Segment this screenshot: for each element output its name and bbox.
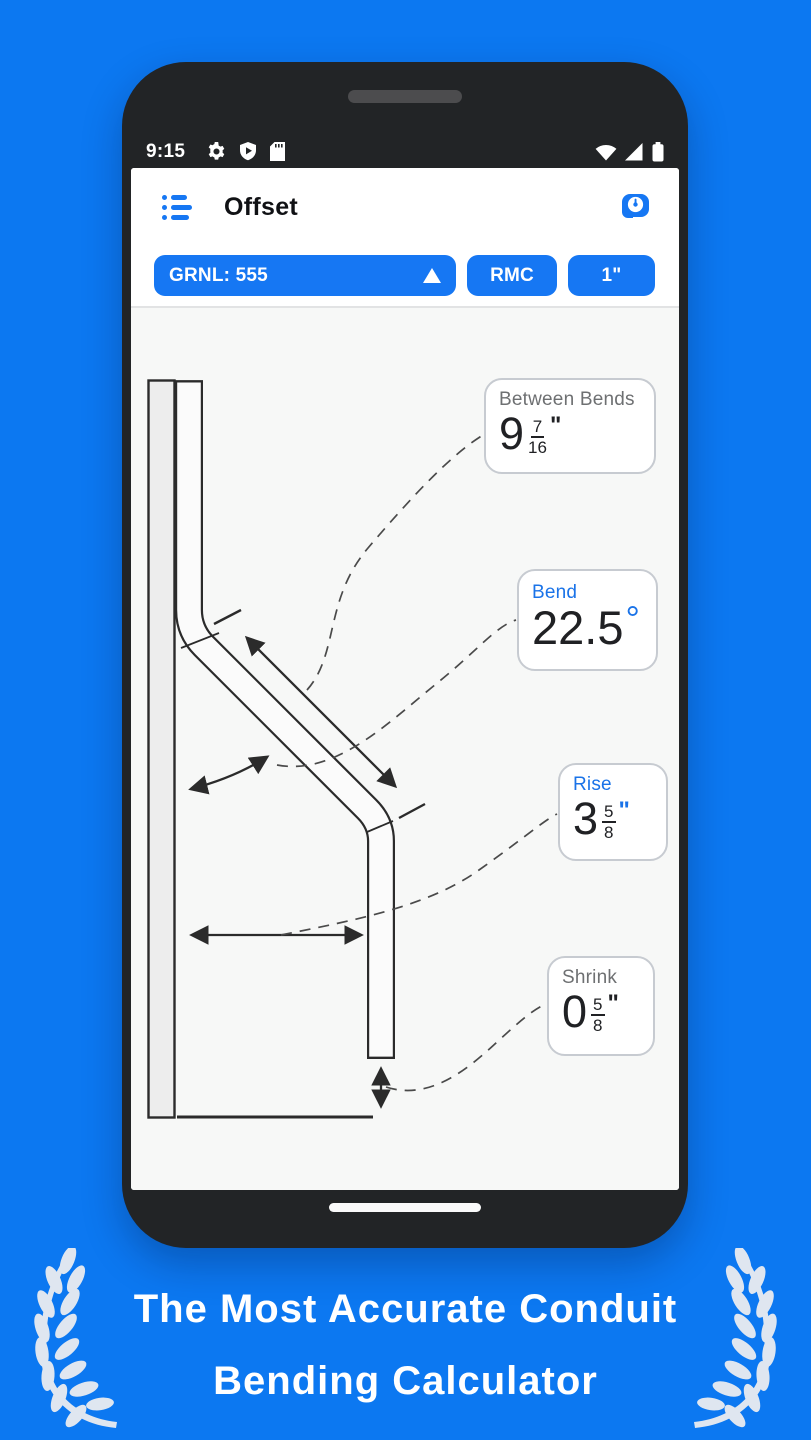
size-label: 1" bbox=[602, 265, 622, 287]
between-bends-value: 9 7 16 " bbox=[499, 413, 644, 457]
bend-tick-1 bbox=[214, 610, 241, 624]
caption-line-1: The Most Accurate Conduit bbox=[0, 1287, 811, 1332]
triangle-up-icon bbox=[423, 268, 441, 283]
rise-value: 3 5 8 " bbox=[573, 798, 656, 842]
leader-shrink bbox=[386, 1004, 546, 1090]
wall bbox=[149, 381, 175, 1118]
app-screen: Offset GRNL: 555 RMC bbox=[131, 168, 679, 1190]
battery-icon bbox=[652, 142, 664, 162]
shrink-callout: Shrink 0 5 8 " bbox=[547, 956, 655, 1056]
gear-icon bbox=[207, 142, 226, 161]
between-bends-callout: Between Bends 9 7 16 " bbox=[484, 378, 656, 474]
material-label: RMC bbox=[490, 265, 534, 287]
laurel-branch-left bbox=[12, 1248, 124, 1434]
clock-time: 9:15 bbox=[146, 141, 185, 163]
shrink-value: 0 5 8 " bbox=[562, 991, 643, 1035]
leader-rise bbox=[281, 814, 557, 935]
cell-signal-icon bbox=[625, 143, 644, 161]
size-button[interactable]: 1" bbox=[568, 255, 655, 296]
home-indicator[interactable] bbox=[329, 1203, 481, 1212]
bender-select-button[interactable]: GRNL: 555 bbox=[154, 255, 456, 296]
laurel-branch-right bbox=[687, 1248, 799, 1434]
degree-mark: ° bbox=[625, 605, 639, 634]
bend-tick-2 bbox=[399, 804, 425, 818]
inch-mark: " bbox=[619, 799, 629, 823]
diagram-canvas: Between Bends 9 7 16 " Bend 22.5 ° bbox=[131, 308, 679, 1190]
sd-card-icon bbox=[270, 142, 285, 161]
material-button[interactable]: RMC bbox=[467, 255, 557, 296]
tape-measure-icon[interactable] bbox=[618, 189, 652, 223]
speaker-slot bbox=[348, 90, 462, 103]
list-menu-icon[interactable] bbox=[162, 194, 192, 222]
conduit-pipe bbox=[175, 381, 395, 1059]
app-bar: Offset bbox=[131, 168, 679, 255]
bend-callout: Bend 22.5 ° bbox=[517, 569, 658, 671]
bend-value: 22.5 ° bbox=[532, 606, 646, 651]
leader-between-bends bbox=[307, 435, 483, 690]
inch-mark: " bbox=[550, 414, 560, 438]
page-title: Offset bbox=[224, 193, 298, 222]
bender-label: GRNL: 555 bbox=[169, 265, 268, 287]
promo-poster: 9:15 bbox=[0, 0, 811, 1440]
inch-mark: " bbox=[608, 992, 618, 1016]
caption-line-2: Bending Calculator bbox=[0, 1359, 811, 1404]
wifi-icon bbox=[595, 143, 617, 161]
controls-row: GRNL: 555 RMC 1" bbox=[131, 255, 679, 307]
rise-callout: Rise 3 5 8 " bbox=[558, 763, 668, 861]
bend-angle-arrow bbox=[191, 757, 267, 789]
play-protect-shield-icon bbox=[239, 142, 257, 161]
phone-frame: 9:15 bbox=[122, 62, 688, 1248]
status-bar: 9:15 bbox=[146, 135, 664, 168]
